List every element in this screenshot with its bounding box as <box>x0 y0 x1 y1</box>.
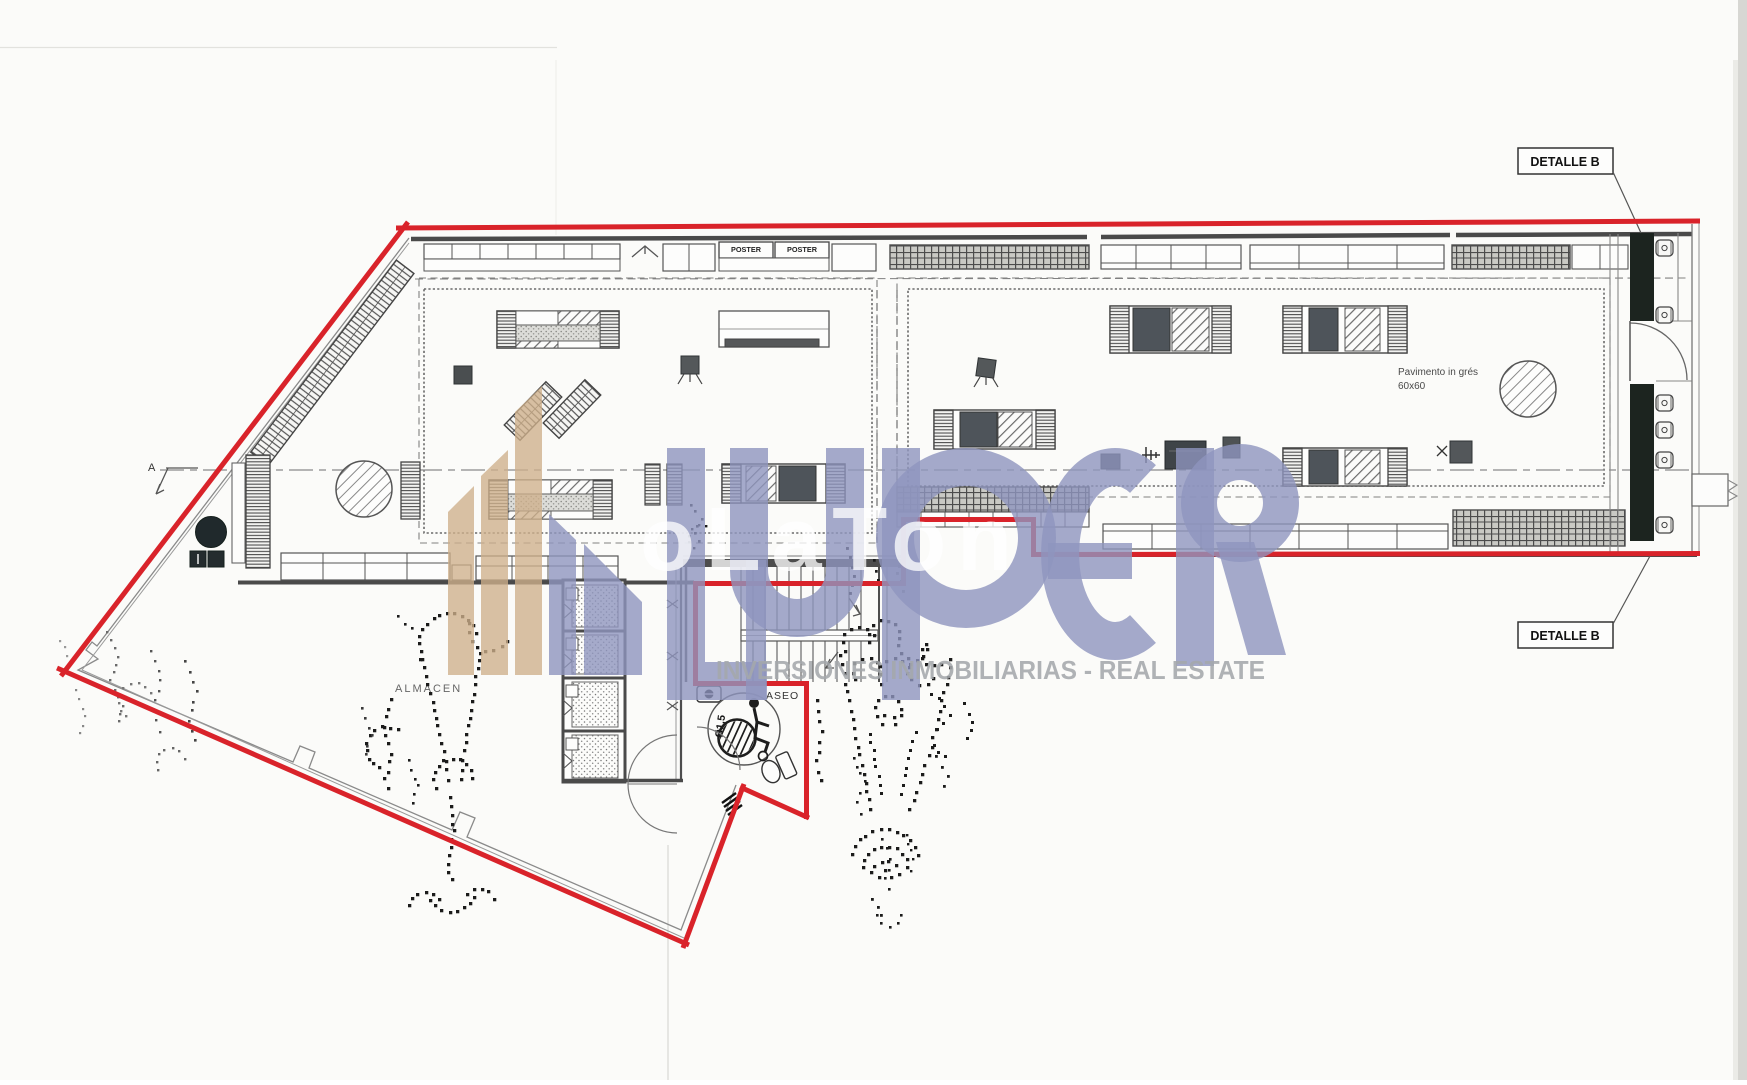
svg-text:DETALLE B: DETALLE B <box>1530 155 1599 169</box>
svg-text:Pavimento in grés: Pavimento in grés <box>1398 367 1478 378</box>
svg-text:ASEO: ASEO <box>766 690 799 702</box>
svg-text:INVERSIONES INMOBILIARIAS - RE: INVERSIONES INMOBILIARIAS - REAL ESTATE <box>716 655 1265 685</box>
svg-text:POSTER: POSTER <box>787 247 817 254</box>
svg-text:POSTER: POSTER <box>731 247 761 254</box>
svg-text:A: A <box>148 462 156 474</box>
svg-text:DETALLE B: DETALLE B <box>1530 629 1599 643</box>
svg-text:60x60: 60x60 <box>1398 381 1426 392</box>
